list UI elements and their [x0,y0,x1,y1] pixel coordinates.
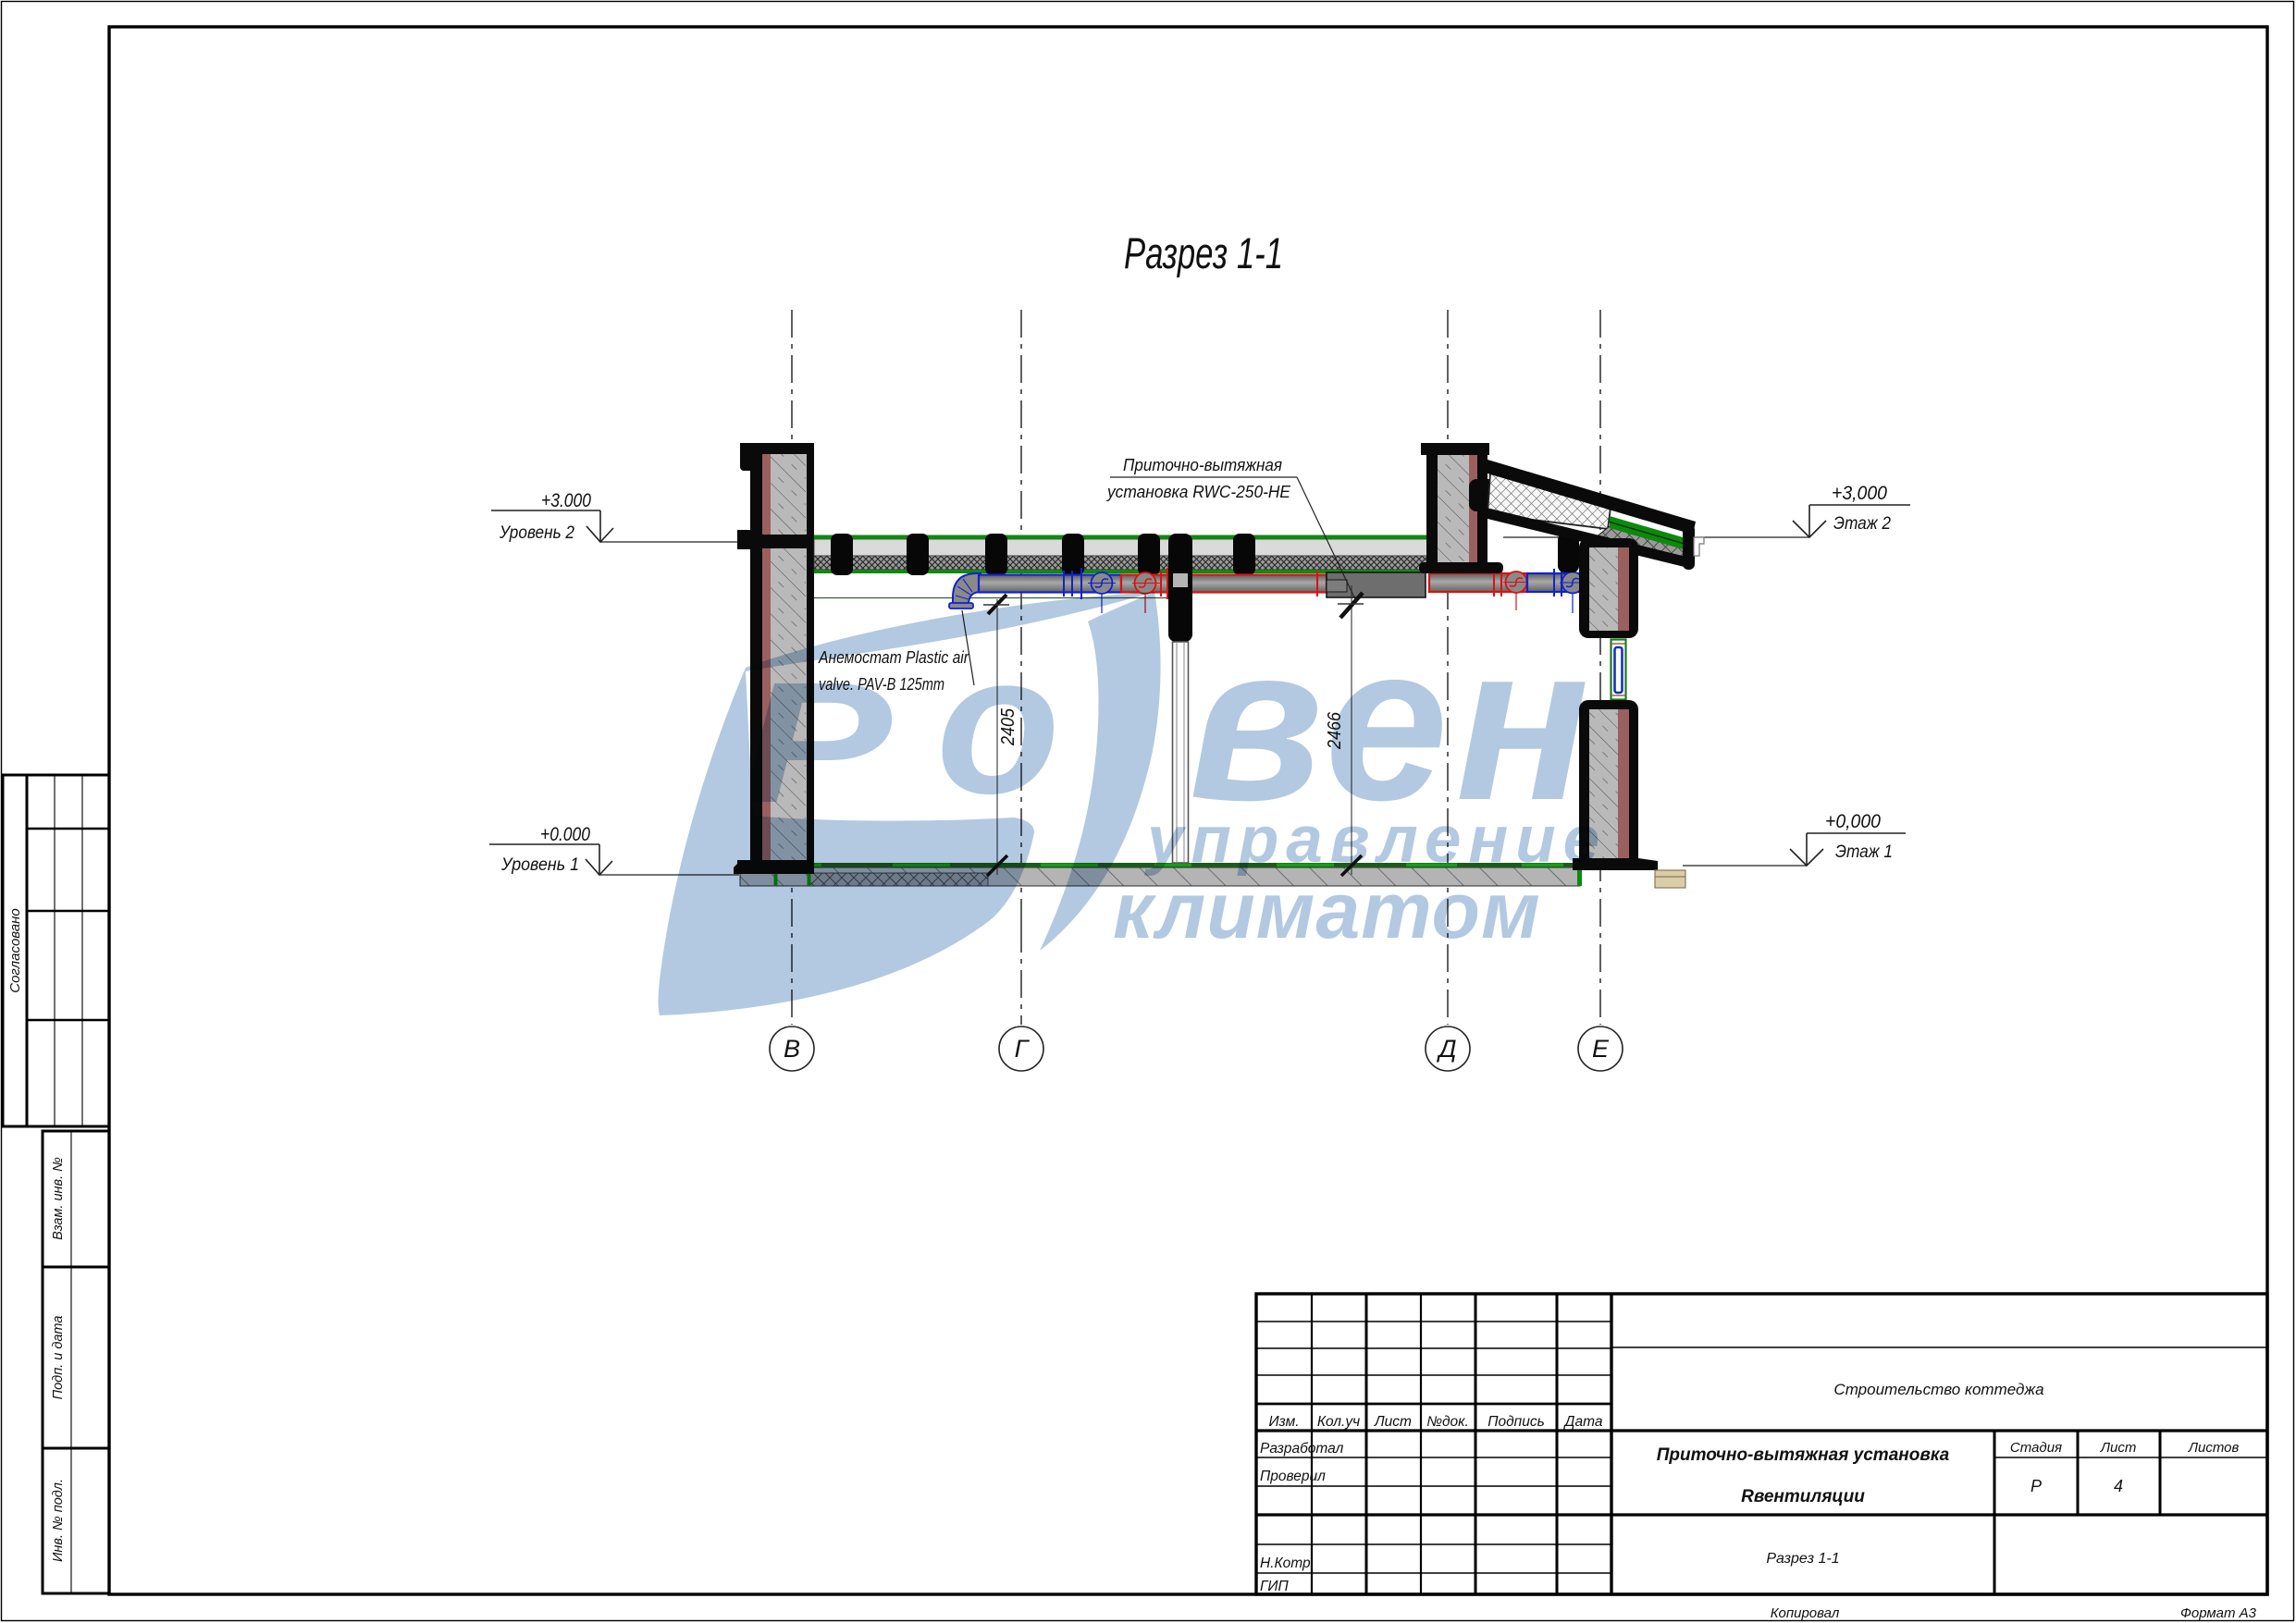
svg-text:установка RWC-250-НЕ: установка RWC-250-НЕ [1105,483,1291,501]
svg-text:ГИП: ГИП [1260,1579,1290,1594]
svg-text:Rвентиляции: Rвентиляции [1741,1487,1865,1506]
svg-text:+0.000: +0.000 [540,824,590,845]
svg-text:№док.: №док. [1426,1414,1469,1430]
svg-text:Копировал: Копировал [1771,1605,1840,1621]
svg-text:о: о [936,613,1060,836]
svg-text:Разработал: Разработал [1260,1441,1344,1457]
svg-text:В: В [784,1035,800,1063]
svg-text:Взам. инв. №: Взам. инв. № [51,1157,66,1240]
svg-text:4: 4 [2114,1477,2123,1495]
svg-text:Подпись: Подпись [1487,1414,1544,1430]
svg-text:Уровень 2: Уровень 2 [499,523,574,543]
svg-text:Приточно-вытяжная: Приточно-вытяжная [1123,456,1282,474]
svg-text:Разрез 1-1: Разрез 1-1 [1766,1551,1839,1567]
svg-text:Стадия: Стадия [2010,1440,2062,1456]
svg-text:Проверил: Проверил [1260,1469,1326,1484]
svg-text:Изм.: Изм. [1268,1414,1299,1430]
svg-text:Е: Е [1592,1035,1610,1063]
svg-text:Дата: Дата [1563,1414,1603,1430]
svg-text:Н.Котр.: Н.Котр. [1260,1555,1315,1571]
svg-text:Этаж 2: Этаж 2 [1833,514,1891,534]
svg-text:Строительство коттеджа: Строительство коттеджа [1833,1381,2043,1398]
svg-text:+3.000: +3.000 [541,490,591,511]
svg-text:Разрез 1-1: Разрез 1-1 [1124,228,1283,277]
svg-text:Р: Р [2031,1477,2042,1495]
svg-text:Инв. № подл.: Инв. № подл. [51,1479,66,1562]
svg-text:Согласовано: Согласовано [7,908,23,993]
svg-text:Листов: Листов [2188,1440,2240,1456]
svg-text:Кол.уч: Кол.уч [1317,1414,1360,1430]
svg-text:+0,000: +0,000 [1825,811,1881,832]
svg-text:Этаж 1: Этаж 1 [1835,842,1893,862]
svg-text:Приточно-вытяжная установка: Приточно-вытяжная установка [1657,1445,1950,1465]
svg-text:Лист: Лист [2100,1440,2137,1456]
svg-text:Формат А3: Формат А3 [2180,1605,2257,1621]
svg-text:Г: Г [1015,1035,1031,1063]
svg-text:Лист: Лист [1374,1414,1412,1430]
svg-text:Подп. и дата: Подп. и дата [51,1316,66,1400]
svg-text:Р: Р [740,647,893,840]
svg-text:+3,000: +3,000 [1832,483,1887,504]
svg-text:Д: Д [1436,1035,1456,1063]
svg-text:Уровень 1: Уровень 1 [500,855,579,875]
svg-text:климатом: климатом [1113,867,1541,955]
